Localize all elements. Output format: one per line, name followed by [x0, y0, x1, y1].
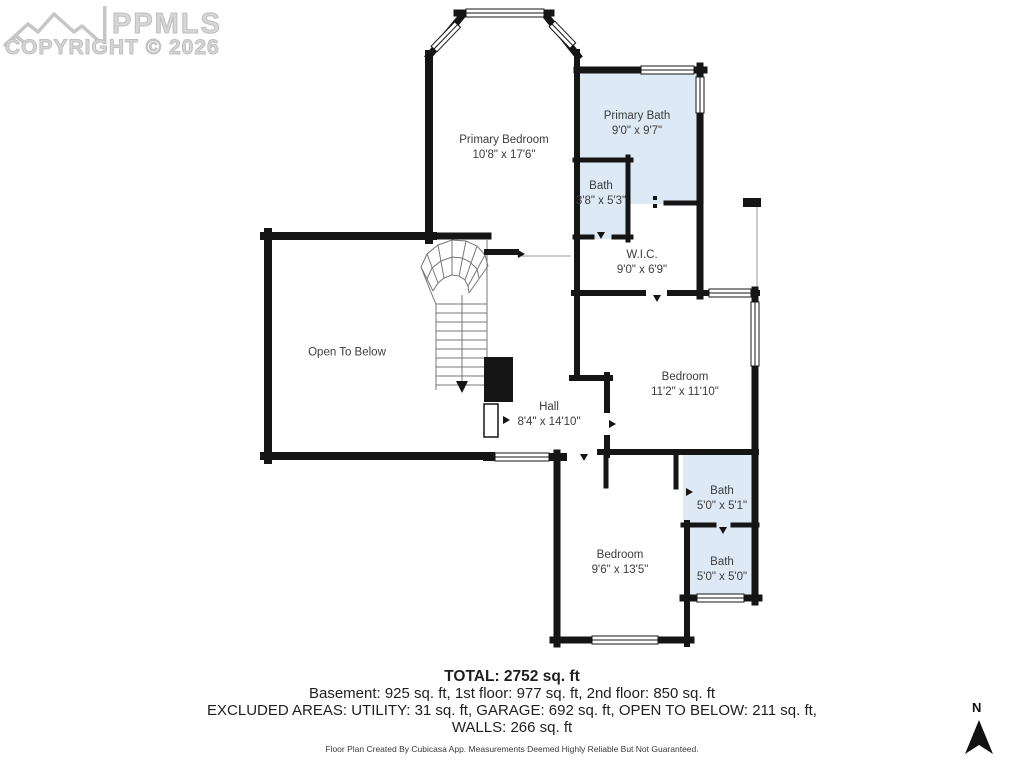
room-name: Bath	[697, 555, 747, 570]
bay-window-right	[549, 21, 576, 48]
room-dims: 5'0" x 5'0"	[697, 570, 747, 585]
room-label-bath1: Bath 5'0" x 5'1"	[697, 484, 747, 514]
summary-floors: Basement: 925 sq. ft, 1st floor: 977 sq.…	[0, 685, 1024, 702]
primary-bath-right-window	[696, 77, 704, 113]
room-label-hall: Hall 8'4" x 14'10"	[517, 400, 580, 430]
room-label-small-bath: Bath 3'8" x 5'3"	[576, 179, 626, 209]
room-label-open-to-below: Open To Below	[308, 346, 386, 361]
room-label-bedroom2: Bedroom 9'6" x 13'5"	[592, 548, 649, 578]
primary-bath-top-window	[641, 66, 694, 74]
floorplan-page: Primary Bedroom 10'8" x 17'6" Primary Ba…	[0, 0, 1024, 767]
bath-fills	[577, 68, 757, 599]
room-dims: 8'4" x 14'10"	[517, 415, 580, 430]
room-label-primary-bedroom: Primary Bedroom 10'8" x 17'6"	[459, 133, 548, 163]
room-name: Bedroom	[651, 370, 719, 385]
room-dims: 9'0" x 6'9"	[617, 263, 667, 278]
staircase	[421, 240, 488, 390]
room-name: Primary Bath	[604, 109, 670, 124]
summary-walls: WALLS: 266 sq. ft	[0, 719, 1024, 736]
stairs-down-arrow	[456, 381, 468, 393]
stair-wall-block	[484, 357, 513, 402]
room-label-bath2: Bath 5'0" x 5'0"	[697, 555, 747, 585]
room-name: Open To Below	[308, 346, 386, 361]
north-arrow-icon	[952, 700, 1012, 762]
room-dims: 11'2" x 11'10"	[651, 385, 719, 400]
room-dims: 3'8" x 5'3"	[576, 194, 626, 209]
room-name: W.I.C.	[617, 248, 667, 263]
room-name: Bath	[697, 484, 747, 499]
room-label-bedroom1: Bedroom 11'2" x 11'10"	[651, 370, 719, 400]
room-dims: 9'6" x 13'5"	[592, 563, 649, 578]
bedroom1-top-window	[709, 289, 751, 297]
stair-door-leaf	[484, 404, 498, 437]
room-name: Hall	[517, 400, 580, 415]
bay-window-top	[466, 9, 544, 17]
summary-total: TOTAL: 2752 sq. ft	[0, 668, 1024, 685]
bedroom1-right-window	[751, 302, 759, 366]
floorplan-svg	[0, 0, 1024, 767]
north-compass: N	[952, 700, 1012, 762]
room-label-primary-bath: Primary Bath 9'0" x 9'7"	[604, 109, 670, 139]
summary-excluded: EXCLUDED AREAS: UTILITY: 31 sq. ft, GARA…	[0, 702, 1024, 719]
hall-bottom-window	[495, 453, 549, 461]
room-label-wic: W.I.C. 9'0" x 6'9"	[617, 248, 667, 278]
room-dims: 5'0" x 5'1"	[697, 499, 747, 514]
room-name: Bedroom	[592, 548, 649, 563]
room-name: Bath	[576, 179, 626, 194]
area-summary: TOTAL: 2752 sq. ft Basement: 925 sq. ft,…	[0, 668, 1024, 755]
bay-window-left	[431, 22, 460, 52]
copyright-text: COPYRIGHT © 2026	[5, 36, 220, 60]
room-dims: 10'8" x 17'6"	[459, 148, 548, 163]
room-name: Primary Bedroom	[459, 133, 548, 148]
disclaimer-text: Floor Plan Created By Cubicasa App. Meas…	[0, 744, 1024, 755]
bath2-bottom-window	[697, 594, 744, 602]
watermark: PPMLS COPYRIGHT © 2026	[0, 0, 260, 70]
bedroom2-bottom-window	[592, 636, 658, 644]
room-dims: 9'0" x 9'7"	[604, 124, 670, 139]
